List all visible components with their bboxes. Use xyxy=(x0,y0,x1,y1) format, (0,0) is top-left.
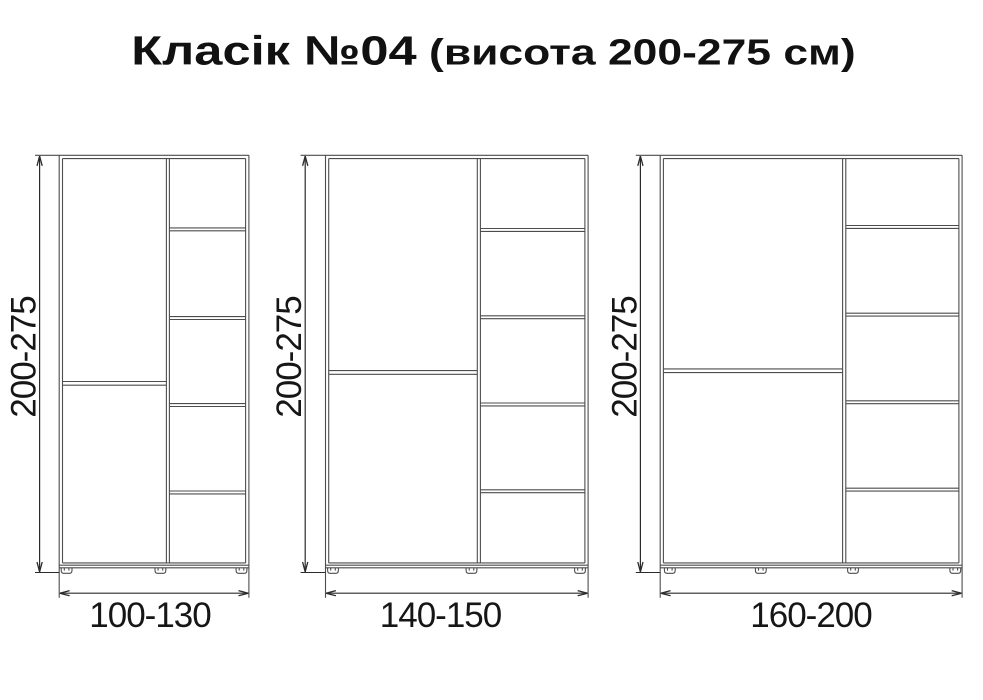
svg-text:200-275: 200-275 xyxy=(605,296,644,417)
svg-text:140-150: 140-150 xyxy=(380,596,502,635)
svg-text:160-200: 160-200 xyxy=(750,596,872,635)
svg-text:Класік №04 (висота 200-275 см): Класік №04 (висота 200-275 см) xyxy=(131,28,855,74)
svg-text:100-130: 100-130 xyxy=(89,596,211,635)
svg-text:200-275: 200-275 xyxy=(5,296,44,417)
svg-text:200-275: 200-275 xyxy=(270,296,309,417)
